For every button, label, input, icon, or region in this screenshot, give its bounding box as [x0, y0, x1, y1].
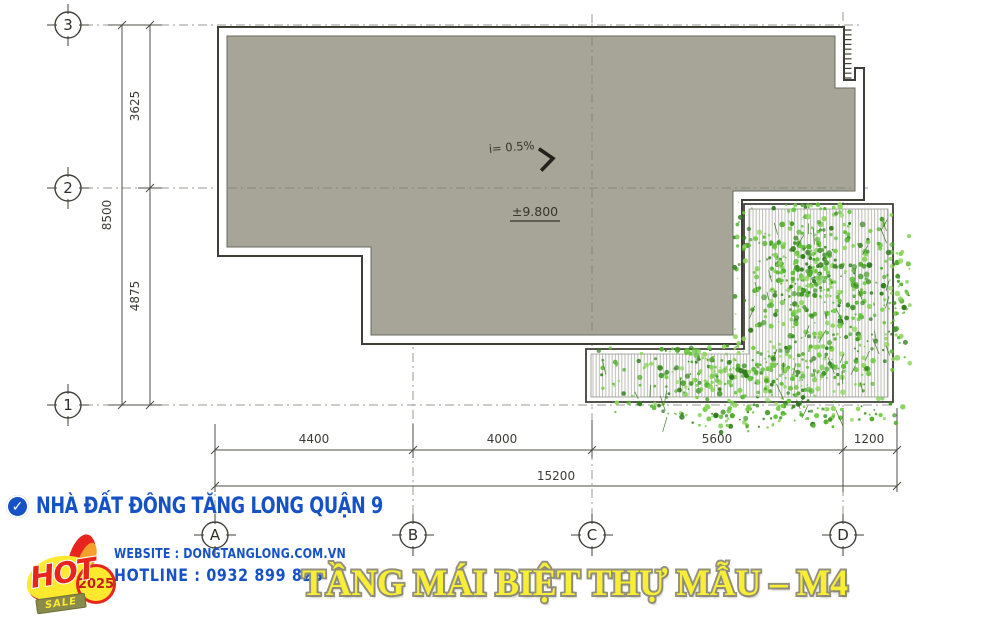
svg-text:3: 3 — [63, 16, 73, 34]
roof-plan-screenshot: 3625 4875 8500 4400 4000 5600 1200 15200… — [0, 0, 1003, 621]
grid-bubble-D: D — [822, 514, 864, 556]
grid-bubble-1: 1 — [47, 384, 89, 426]
dim-3625: 3625 — [128, 91, 142, 122]
svg-text:A: A — [210, 526, 221, 544]
grid-bubble-C: C — [571, 514, 613, 556]
svg-text:B: B — [408, 526, 418, 544]
dim-5600: 5600 — [702, 432, 733, 446]
dim-4400: 4400 — [299, 432, 330, 446]
plan-drawing: 3625 4875 8500 4400 4000 5600 1200 15200… — [0, 0, 1003, 621]
grid-bubble-3: 3 — [47, 4, 89, 46]
dim-8500: 8500 — [100, 200, 114, 231]
svg-text:2: 2 — [63, 179, 73, 197]
dim-15200: 15200 — [537, 469, 575, 483]
agency-banner: ✓ NHÀ ĐẤT ĐÔNG TĂNG LONG QUẬN 9 — [6, 494, 470, 519]
website-line: WEBSITE : DONGTANGLONG.COM.VN — [114, 546, 346, 562]
svg-text:C: C — [587, 526, 597, 544]
vertical-dimension-lines — [108, 21, 162, 409]
svg-text:D: D — [837, 526, 849, 544]
grid-bubble-B: B — [392, 514, 434, 556]
svg-text:1: 1 — [63, 396, 73, 414]
plan-title: TẦNG MÁI BIỆT THỰ MẪU – M4 — [302, 562, 848, 605]
verified-check-icon: ✓ — [6, 495, 29, 518]
grid-bubble-2: 2 — [47, 167, 89, 209]
dim-4000: 4000 — [487, 432, 518, 446]
agency-name: NHÀ ĐẤT ĐÔNG TĂNG LONG QUẬN 9 — [36, 494, 383, 519]
hot-sale-badge: 2025 HOT SALE — [24, 538, 116, 618]
level-annotation: ±9.800 — [512, 204, 558, 219]
dim-4875: 4875 — [128, 281, 142, 312]
roof-ladder-icon — [844, 28, 852, 79]
hotline-line: HOTLINE : 0932 899 823 — [114, 566, 324, 586]
dim-1200: 1200 — [854, 432, 885, 446]
